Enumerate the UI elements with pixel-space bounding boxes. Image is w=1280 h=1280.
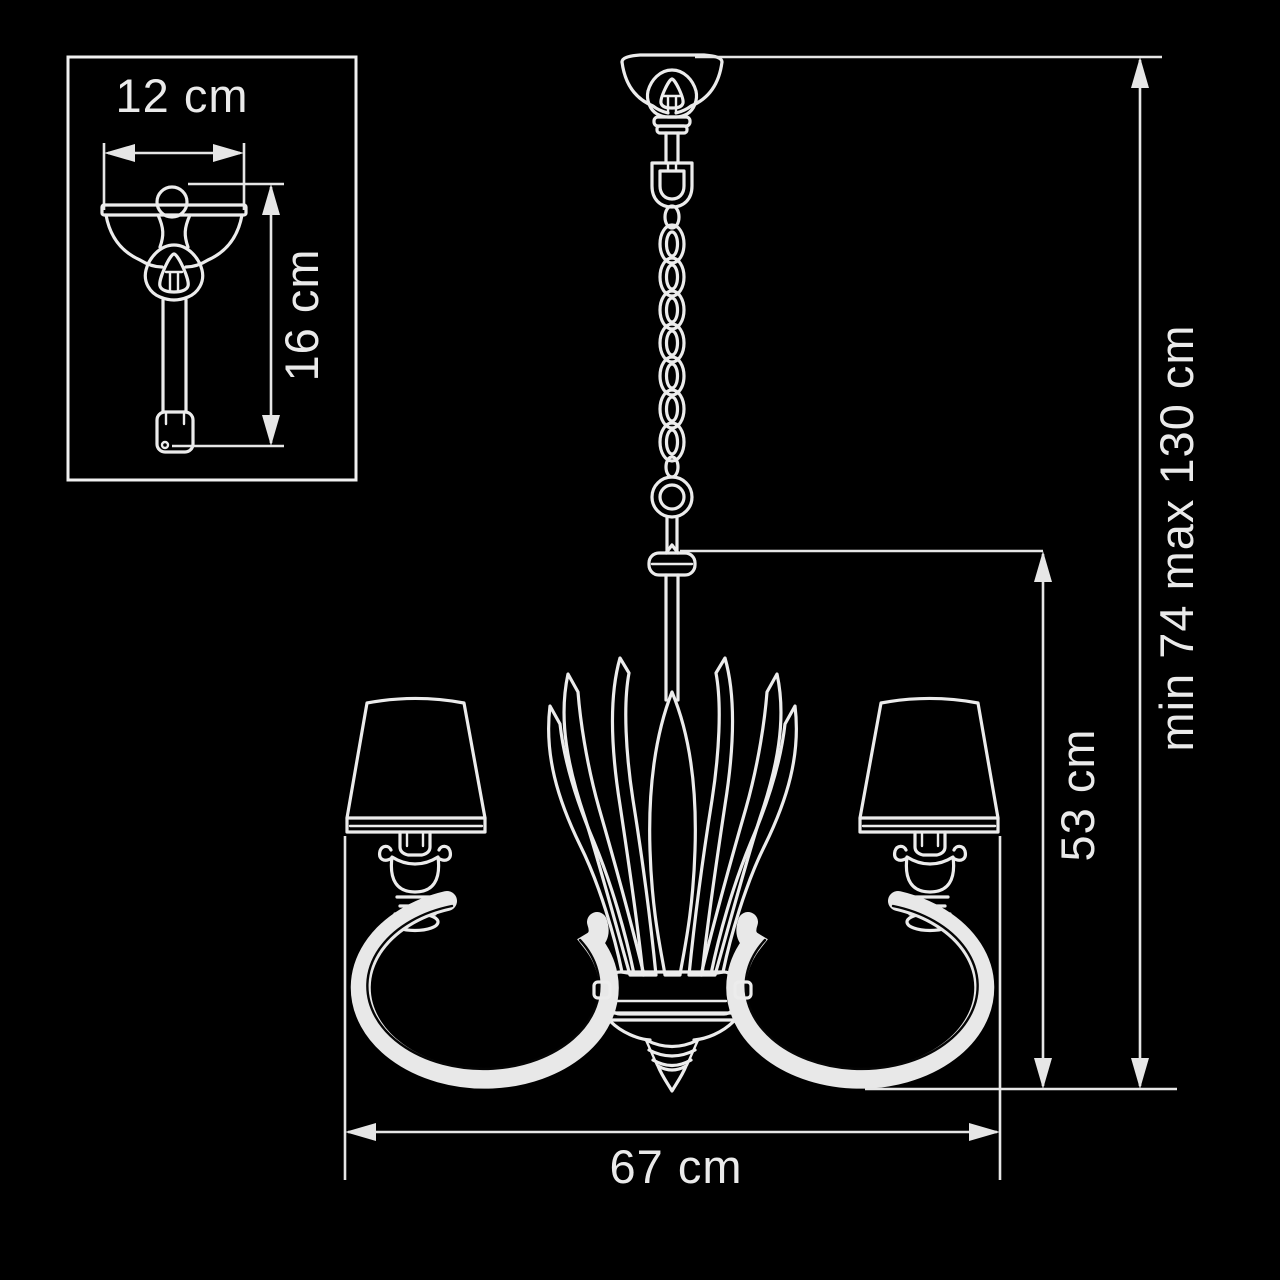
stem [649,477,695,700]
suspension-rod-swivel [652,133,692,228]
leaf-ornaments [549,658,797,975]
fixture-width-label: 67 cm [610,1140,743,1193]
right-lamp-arm [735,699,998,1079]
fixture-height-label: 53 cm [1051,729,1104,862]
inset-canopy-drawing [102,187,246,452]
ceiling-canopy [622,55,722,133]
canopy-detail-inset: 12 cm [68,57,356,480]
canopy-height-label: 16 cm [275,249,328,382]
hanging-height-label: min 74 max 130 cm [1150,324,1203,751]
left-lamp-arm [347,699,610,1079]
chain [660,225,684,477]
central-hub-finial [604,972,740,1091]
canopy-width-label: 12 cm [116,69,249,122]
diagram-canvas: min 74 max 130 cm 53 cm 67 cm 12 cm [0,0,1280,1280]
chandelier-technical-drawing: min 74 max 130 cm 53 cm 67 cm 12 cm [0,0,1280,1280]
dimension-canopy-height: 16 cm [172,184,328,446]
chandelier-drawing [347,55,998,1091]
